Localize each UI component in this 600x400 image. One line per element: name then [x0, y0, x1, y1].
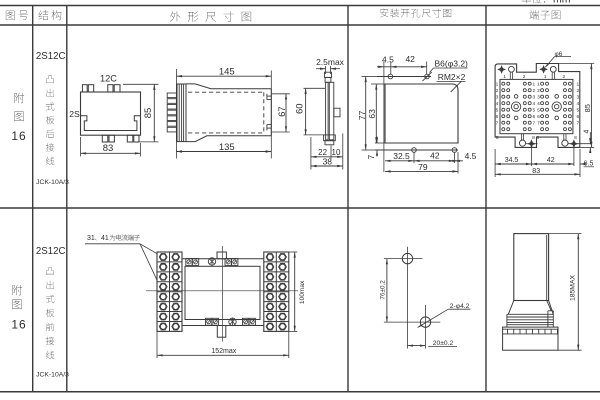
svg-text:6: 6 — [537, 114, 540, 120]
svg-text:31: 31 — [87, 235, 95, 242]
svg-text:1: 1 — [503, 74, 506, 80]
svg-text:JCK-10A/3: JCK-10A/3 — [36, 179, 69, 186]
svg-text:77: 77 — [357, 110, 367, 120]
svg-text:2S12C: 2S12C — [36, 51, 66, 62]
svg-text:1: 1 — [537, 82, 540, 88]
svg-text:2S: 2S — [69, 109, 80, 119]
svg-text:85: 85 — [143, 108, 154, 119]
svg-text:4: 4 — [496, 101, 499, 107]
svg-text:16: 16 — [11, 129, 26, 143]
svg-text:2S12C: 2S12C — [36, 246, 66, 257]
svg-text:185MAX: 185MAX — [570, 275, 577, 302]
svg-text:3: 3 — [537, 95, 540, 101]
svg-text:76±0.2: 76±0.2 — [379, 280, 386, 300]
svg-text:6: 6 — [576, 114, 579, 120]
svg-text:JCK-10A/3: JCK-10A/3 — [36, 371, 69, 378]
svg-text:2: 2 — [496, 88, 499, 94]
svg-text:5: 5 — [496, 107, 499, 113]
svg-text:67: 67 — [277, 106, 288, 117]
svg-text:φ6: φ6 — [555, 51, 563, 58]
svg-text:2: 2 — [532, 88, 535, 94]
svg-text:1: 1 — [544, 74, 547, 80]
svg-text:7: 7 — [576, 120, 579, 126]
svg-text:63: 63 — [367, 109, 377, 119]
svg-text:5: 5 — [576, 107, 579, 113]
svg-text:2: 2 — [576, 88, 579, 94]
svg-text:83: 83 — [103, 143, 114, 154]
svg-text:8: 8 — [536, 135, 539, 141]
svg-text:6.5: 6.5 — [584, 160, 594, 167]
svg-text:38: 38 — [323, 157, 333, 167]
svg-text:16: 16 — [11, 317, 26, 331]
svg-text:RM2×2: RM2×2 — [438, 72, 466, 82]
svg-text:2: 2 — [523, 74, 526, 80]
svg-text:1: 1 — [576, 81, 579, 87]
svg-text:32.5: 32.5 — [393, 151, 410, 161]
svg-text:8: 8 — [574, 135, 577, 141]
svg-text:7: 7 — [532, 121, 535, 127]
svg-text:6: 6 — [496, 114, 499, 120]
svg-text:8: 8 — [532, 135, 535, 141]
svg-text:4: 4 — [576, 101, 579, 107]
svg-text:B6(φ3.2): B6(φ3.2) — [435, 59, 469, 69]
svg-text:79: 79 — [418, 162, 428, 172]
svg-text:4: 4 — [584, 130, 591, 134]
svg-text:8: 8 — [496, 135, 499, 141]
svg-text:85: 85 — [583, 104, 592, 112]
svg-text:42: 42 — [430, 150, 440, 160]
svg-text:mm: mm — [553, 0, 571, 6]
svg-text:4.5: 4.5 — [465, 151, 477, 161]
svg-text:2.5max: 2.5max — [316, 57, 345, 67]
svg-text:10: 10 — [332, 148, 341, 157]
svg-text:152max: 152max — [211, 348, 236, 355]
svg-text:1: 1 — [532, 82, 535, 88]
svg-text:4: 4 — [537, 101, 540, 107]
svg-text:42: 42 — [405, 54, 415, 64]
svg-text:83: 83 — [532, 168, 540, 175]
svg-text:42: 42 — [547, 157, 555, 164]
svg-text:5: 5 — [532, 108, 535, 114]
svg-text:1: 1 — [496, 81, 499, 87]
svg-text:4.5: 4.5 — [382, 54, 394, 64]
svg-text:100max: 100max — [299, 280, 306, 304]
svg-text:2: 2 — [562, 74, 565, 80]
svg-text:7: 7 — [496, 120, 499, 126]
svg-text:12C: 12C — [100, 74, 117, 84]
svg-text:7: 7 — [367, 154, 376, 159]
svg-text:2: 2 — [537, 88, 540, 94]
svg-text:4: 4 — [532, 101, 535, 107]
svg-text:3: 3 — [496, 94, 499, 100]
svg-text:135: 135 — [219, 142, 235, 153]
svg-text:7: 7 — [537, 121, 540, 127]
svg-text:3: 3 — [532, 95, 535, 101]
svg-text:34.5: 34.5 — [505, 157, 519, 164]
svg-text:6: 6 — [532, 114, 535, 120]
svg-text:5: 5 — [537, 108, 540, 114]
svg-text:2-φ4.2: 2-φ4.2 — [450, 303, 470, 310]
svg-text:41: 41 — [101, 235, 109, 242]
svg-text:60: 60 — [295, 103, 306, 114]
svg-text:3: 3 — [576, 94, 579, 100]
svg-text:145: 145 — [219, 66, 235, 77]
